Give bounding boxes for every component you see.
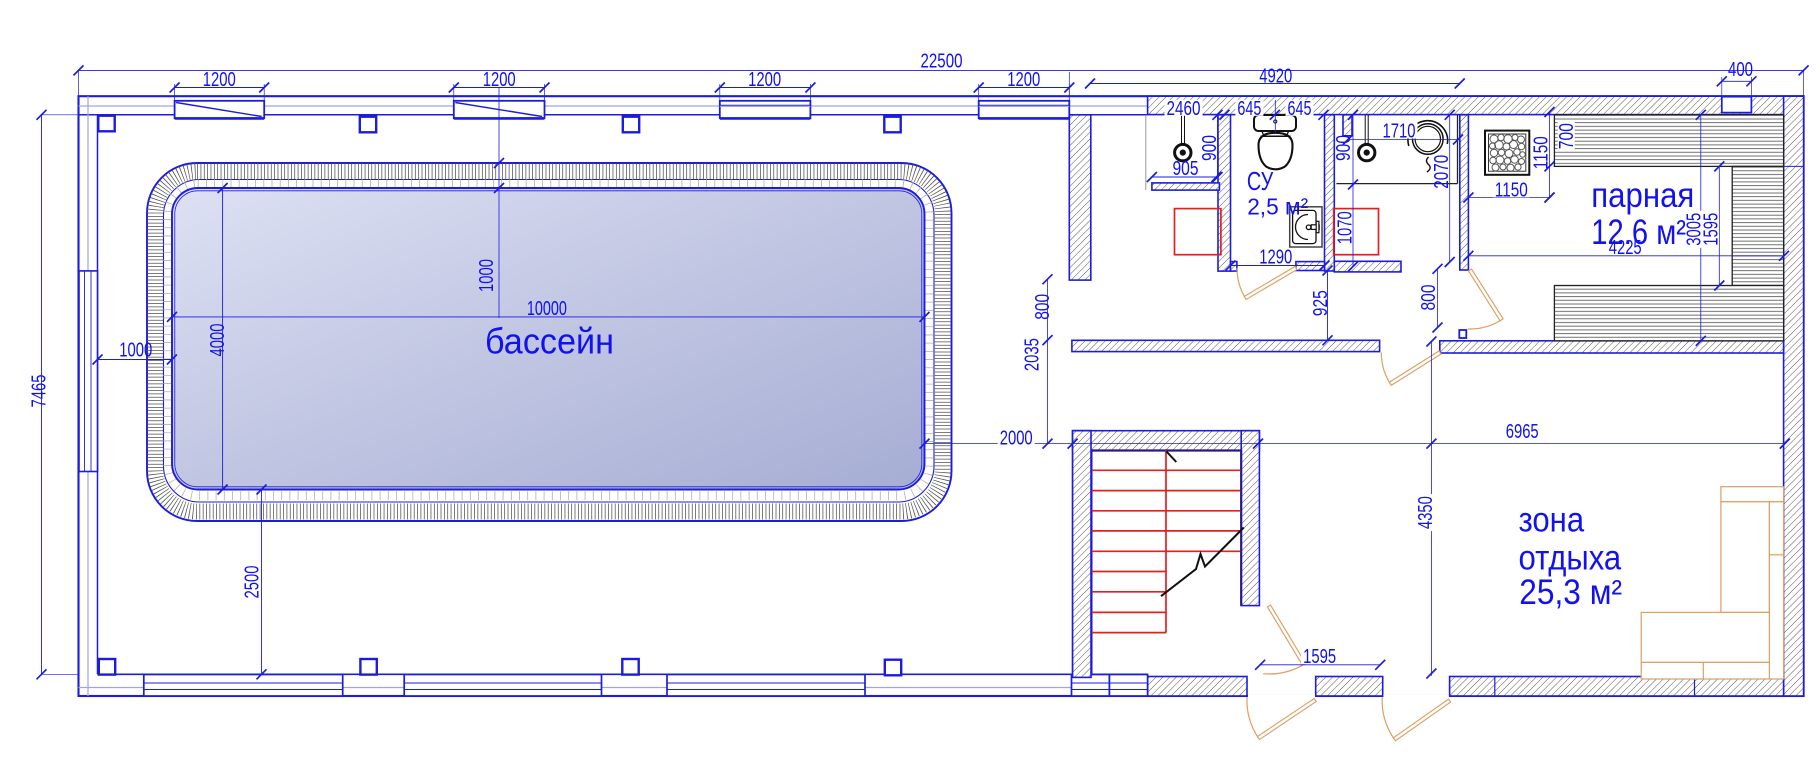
svg-text:800: 800	[1418, 285, 1440, 311]
svg-text:2,5 м²: 2,5 м²	[1247, 194, 1308, 220]
svg-text:905: 905	[1173, 158, 1199, 180]
svg-text:1150: 1150	[1495, 179, 1528, 201]
svg-text:1595: 1595	[1701, 213, 1723, 246]
svg-text:4000: 4000	[207, 324, 229, 357]
svg-text:645: 645	[1237, 98, 1261, 120]
svg-text:10000: 10000	[527, 298, 567, 320]
svg-text:800: 800	[1032, 294, 1054, 320]
svg-text:2070: 2070	[1431, 155, 1453, 189]
svg-text:2035: 2035	[1022, 338, 1044, 371]
svg-text:1200: 1200	[203, 69, 236, 91]
svg-text:2500: 2500	[242, 566, 264, 599]
svg-text:900: 900	[1333, 135, 1355, 161]
svg-text:22500: 22500	[921, 51, 963, 73]
svg-text:400: 400	[1728, 59, 1753, 81]
svg-text:6965: 6965	[1506, 421, 1539, 443]
svg-text:12.6 м²: 12.6 м²	[1591, 213, 1686, 252]
svg-text:645: 645	[1288, 98, 1312, 120]
svg-text:925: 925	[1310, 290, 1332, 316]
svg-text:1595: 1595	[1303, 646, 1336, 668]
svg-text:парная: парная	[1591, 176, 1694, 215]
svg-text:700: 700	[1556, 123, 1578, 149]
svg-text:4920: 4920	[1259, 66, 1292, 88]
svg-text:900: 900	[1199, 135, 1221, 161]
svg-text:бассейн: бассейн	[485, 321, 614, 362]
svg-text:1150: 1150	[1531, 136, 1553, 169]
svg-text:1000: 1000	[119, 340, 152, 362]
svg-text:7465: 7465	[29, 375, 51, 408]
svg-text:4350: 4350	[1415, 496, 1437, 529]
svg-text:1200: 1200	[1007, 69, 1040, 91]
svg-text:1290: 1290	[1259, 247, 1292, 269]
svg-text:1070: 1070	[1334, 211, 1356, 244]
svg-text:1710: 1710	[1383, 121, 1416, 143]
svg-text:1200: 1200	[483, 69, 516, 91]
svg-text:25,3 м²: 25,3 м²	[1519, 573, 1622, 612]
svg-text:2000: 2000	[1000, 427, 1033, 449]
svg-text:1200: 1200	[748, 69, 781, 91]
svg-text:1000: 1000	[476, 259, 498, 292]
svg-text:зона: зона	[1519, 500, 1585, 539]
svg-text:2460: 2460	[1167, 98, 1201, 120]
svg-text:СУ: СУ	[1247, 166, 1274, 196]
svg-text:отдыха: отдыха	[1519, 539, 1622, 578]
